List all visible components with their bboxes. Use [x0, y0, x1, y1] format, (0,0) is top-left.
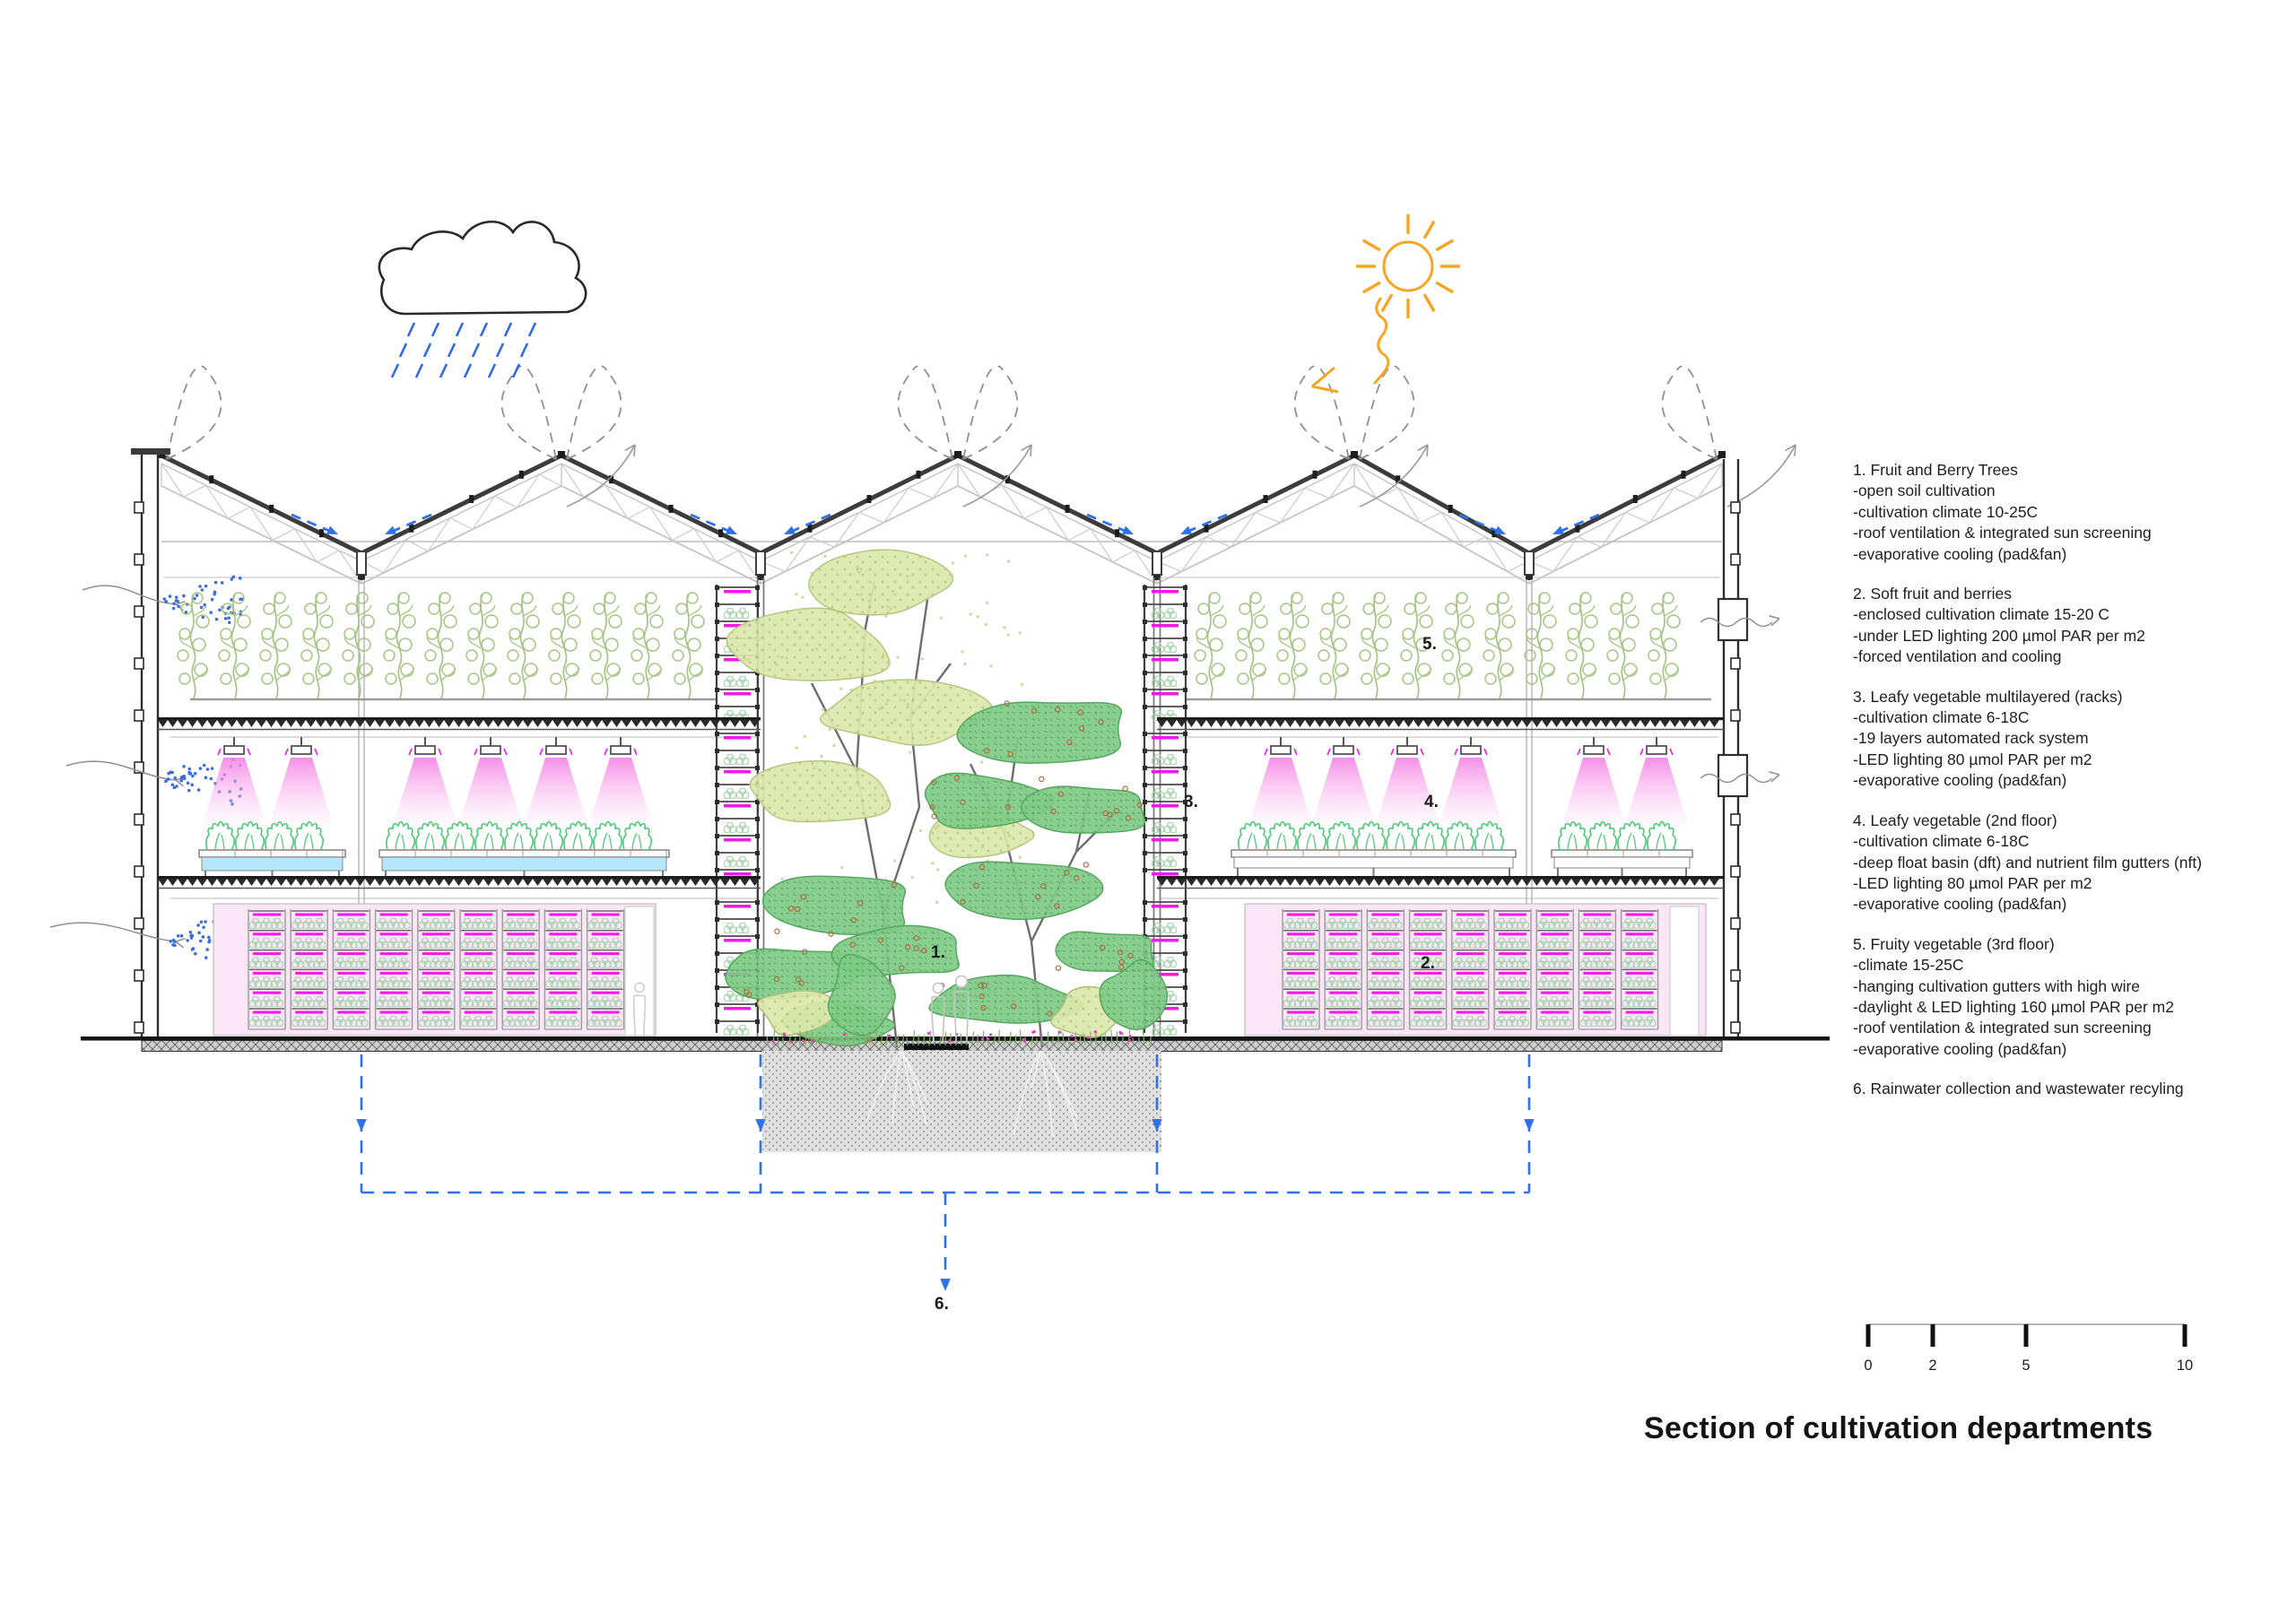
- scale-tick-label: 0: [1864, 1357, 1872, 1374]
- legend: 1. Fruit and Berry Trees-open soil culti…: [1853, 460, 2202, 1119]
- sun-ray-arrow-icon: [1312, 298, 1388, 392]
- grow-lamp-icon: [1265, 737, 1297, 755]
- scale-bar: 02510: [1864, 1324, 2193, 1374]
- legend-line: -evaporative cooling (pad&fan): [1853, 770, 2202, 791]
- wall-vent-icon: [1718, 599, 1747, 640]
- legend-line: -cultivation climate 6-18C: [1853, 707, 2202, 728]
- legend-block-5: 5. Fruity vegetable (3rd floor)-climate …: [1853, 934, 2202, 1060]
- legend-line: -cultivation climate 6-18C: [1853, 831, 2202, 852]
- grow-lamp-icon: [540, 737, 572, 755]
- grow-lamp-icon: [604, 737, 637, 755]
- grow-lamp-icon: [218, 737, 250, 755]
- roof-vent-flap-icon: [167, 366, 222, 459]
- legend-line: -climate 15-25C: [1853, 955, 2202, 976]
- legend-line: -hanging cultivation gutters with high w…: [1853, 976, 2202, 997]
- legend-line: -enclosed cultivation climate 15-20 C: [1853, 604, 2202, 625]
- legend-block-4: 4. Leafy vegetable (2nd floor)-cultivati…: [1853, 811, 2202, 915]
- rain-icon: [392, 323, 535, 377]
- legend-line: 2. Soft fruit and berries: [1853, 584, 2202, 604]
- grow-lamp-icon: [1640, 737, 1673, 755]
- legend-line: 4. Leafy vegetable (2nd floor): [1853, 811, 2202, 831]
- legend-line: 3. Leafy vegetable multilayered (racks): [1853, 687, 2202, 707]
- scale-tick-label: 2: [1928, 1357, 1936, 1374]
- legend-block-2: 2. Soft fruit and berries-enclosed culti…: [1853, 584, 2202, 668]
- legend-line: -roof ventilation & integrated sun scree…: [1853, 523, 2202, 543]
- cultivation-section-page: 1.2.3.4.5.6.02510 1. Fruit and Berry Tre…: [0, 0, 2296, 1622]
- grow-lamp-icon: [1327, 737, 1360, 755]
- grow-lamp-icon: [1455, 737, 1487, 755]
- section-label-l4: 4.: [1424, 793, 1439, 811]
- legend-line: 5. Fruity vegetable (3rd floor): [1853, 934, 2202, 955]
- section-label-l2: 2.: [1421, 954, 1435, 973]
- roof-vent-flap-icon: [898, 366, 1017, 459]
- grow-lamp-icon: [1391, 737, 1423, 755]
- legend-line: -evaporative cooling (pad&fan): [1853, 894, 2202, 915]
- ground: [81, 1037, 1830, 1152]
- section-label-l5: 5.: [1422, 635, 1437, 654]
- section-label-l3: 3.: [1184, 793, 1198, 811]
- roof-vent-flap-icon: [501, 366, 621, 459]
- legend-line: 1. Fruit and Berry Trees: [1853, 460, 2202, 481]
- legend-line: -daylight & LED lighting 160 µmol PAR pe…: [1853, 997, 2202, 1018]
- section-label-l6: 6.: [935, 1295, 949, 1314]
- legend-line: -roof ventilation & integrated sun scree…: [1853, 1018, 2202, 1038]
- scale-tick-label: 10: [2177, 1357, 2193, 1374]
- legend-line: -19 layers automated rack system: [1853, 728, 2202, 749]
- legend-block-1: 1. Fruit and Berry Trees-open soil culti…: [1853, 460, 2202, 565]
- legend-line: -deep float basin (dft) and nutrient fil…: [1853, 853, 2202, 873]
- legend-line: -cultivation climate 10-25C: [1853, 502, 2202, 523]
- legend-line: -forced ventilation and cooling: [1853, 646, 2202, 667]
- section-label-l1: 1.: [931, 943, 945, 962]
- evaporative-cooling-spray-icon: [162, 576, 244, 624]
- legend-line: -evaporative cooling (pad&fan): [1853, 1039, 2202, 1060]
- page-title: Section of cultivation departments: [1644, 1411, 2153, 1446]
- grow-lamp-icon: [285, 737, 317, 755]
- grow-lamp-icon: [1578, 737, 1610, 755]
- legend-block-3: 3. Leafy vegetable multilayered (racks)-…: [1853, 687, 2202, 792]
- grow-lamp-icon: [474, 737, 507, 755]
- scale-tick-label: 5: [2022, 1357, 2030, 1374]
- legend-line: 6. Rainwater collection and wastewater r…: [1853, 1079, 2202, 1099]
- legend-line: -LED lighting 80 µmol PAR per m2: [1853, 873, 2202, 894]
- wall-vent-icon: [1718, 755, 1747, 796]
- roof-vent-flap-icon: [1662, 366, 1717, 459]
- air-inflow-arrow-icon: [50, 923, 185, 948]
- legend-line: -under LED lighting 200 µmol PAR per m2: [1853, 626, 2202, 646]
- atrium-trees: [726, 550, 1167, 1047]
- sawtooth-roof-trusses: [158, 366, 1796, 584]
- legend-line: -evaporative cooling (pad&fan): [1853, 544, 2202, 565]
- legend-block-6: 6. Rainwater collection and wastewater r…: [1853, 1079, 2202, 1099]
- sun-icon: [1356, 214, 1460, 318]
- rain-cloud-icon: [379, 221, 586, 377]
- grow-lamp-icon: [409, 737, 441, 755]
- legend-line: -open soil cultivation: [1853, 481, 2202, 501]
- legend-line: -LED lighting 80 µmol PAR per m2: [1853, 750, 2202, 770]
- roof-vent-flap-icon: [1294, 366, 1413, 459]
